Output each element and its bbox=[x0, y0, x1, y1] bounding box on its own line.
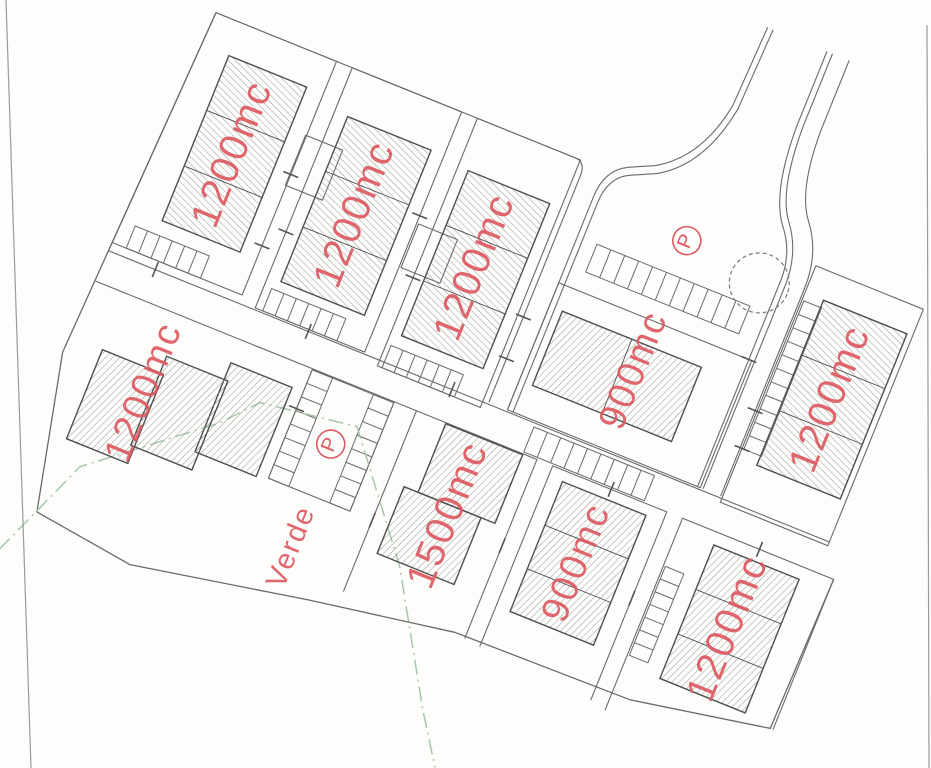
boundary-tick bbox=[608, 482, 614, 497]
stall-divider bbox=[312, 309, 321, 331]
stall-divider bbox=[655, 272, 666, 300]
building: 1500mc bbox=[371, 418, 522, 604]
boundary-tick bbox=[152, 262, 158, 277]
stall-divider bbox=[274, 465, 294, 473]
stall-divider bbox=[604, 459, 614, 484]
stall-divider bbox=[711, 295, 722, 323]
rotated-plan-group: 1200mc1200mc1200mc1200mc900mc1200mc1500m… bbox=[0, 0, 931, 768]
stall-divider bbox=[655, 592, 674, 599]
stall-divider bbox=[725, 300, 736, 328]
stall-divider bbox=[188, 251, 197, 273]
parking-symbol: P bbox=[312, 426, 348, 462]
stall-divider bbox=[771, 382, 789, 389]
boundary-tick bbox=[406, 275, 421, 281]
stall-divider bbox=[634, 643, 653, 650]
building: 1200mc bbox=[658, 540, 801, 718]
boundary-tick bbox=[735, 445, 750, 451]
stall-divider bbox=[301, 397, 321, 405]
building: 900mc bbox=[510, 482, 646, 646]
building: 1200mc bbox=[66, 304, 297, 512]
stall-divider bbox=[139, 231, 148, 253]
stall-divider bbox=[368, 408, 388, 416]
boundary-tick bbox=[499, 356, 514, 362]
stall-divider bbox=[660, 579, 679, 586]
site-plan-svg: 1200mc1200mc1200mc1200mc900mc1200mc1500m… bbox=[0, 0, 931, 768]
green-area-label: Verde bbox=[260, 501, 322, 593]
stall-divider bbox=[787, 341, 805, 348]
stall-divider bbox=[577, 449, 587, 474]
boundary-tick bbox=[255, 243, 270, 249]
stall-divider bbox=[341, 476, 361, 484]
parking-symbol-letter: P bbox=[673, 231, 698, 252]
building: 1200mc bbox=[281, 117, 431, 316]
building: 1200mc bbox=[401, 171, 549, 369]
scan-page-edge-left bbox=[6, 0, 31, 768]
boundary-tick bbox=[741, 357, 756, 363]
stall-divider bbox=[591, 454, 601, 479]
stall-divider bbox=[300, 304, 309, 326]
scanned-site-plan-document: 1200mc1200mc1200mc1200mc900mc1200mc1500m… bbox=[0, 0, 931, 768]
stall-divider bbox=[798, 314, 816, 321]
stall-divider bbox=[290, 424, 310, 432]
stall-divider bbox=[564, 443, 574, 468]
stall-divider bbox=[279, 451, 299, 459]
stall-divider bbox=[777, 368, 795, 375]
stall-divider bbox=[335, 489, 355, 497]
boundary-tick bbox=[629, 591, 635, 606]
stall-divider bbox=[683, 284, 694, 312]
stall-divider bbox=[362, 422, 382, 430]
parking-stalls bbox=[330, 394, 394, 511]
stall-divider bbox=[755, 422, 773, 429]
parking-symbol-letter: P bbox=[317, 434, 342, 455]
boundary-tick bbox=[516, 314, 531, 320]
stall-divider bbox=[645, 617, 664, 624]
stall-divider bbox=[760, 409, 778, 416]
stall-divider bbox=[669, 278, 680, 306]
stall-divider bbox=[749, 436, 767, 443]
stall-divider bbox=[766, 395, 784, 402]
boundary-tick bbox=[279, 229, 294, 235]
scan-page-edge-right bbox=[927, 25, 929, 768]
stall-divider bbox=[537, 432, 547, 457]
stall-divider bbox=[640, 630, 659, 637]
stall-divider bbox=[793, 328, 811, 335]
stall-divider bbox=[176, 246, 185, 268]
parking-symbol: P bbox=[669, 222, 705, 258]
stall-divider bbox=[346, 462, 366, 470]
stall-divider bbox=[650, 604, 669, 611]
stall-divider bbox=[697, 289, 708, 317]
stall-divider bbox=[163, 241, 172, 263]
boundary-tick bbox=[449, 382, 455, 397]
stall-divider bbox=[287, 299, 296, 321]
boundary-tick bbox=[757, 542, 763, 557]
boundary-tick bbox=[369, 513, 375, 528]
stall-divider bbox=[275, 294, 284, 316]
stall-divider bbox=[324, 314, 333, 336]
boundary-tick bbox=[305, 324, 311, 339]
stall-divider bbox=[307, 383, 327, 391]
boundary-tick bbox=[412, 213, 427, 219]
stall-divider bbox=[352, 449, 372, 457]
stall-divider bbox=[641, 267, 652, 295]
boundary-tick bbox=[499, 538, 505, 553]
stall-divider bbox=[614, 255, 625, 283]
building: 1200mc bbox=[757, 300, 907, 499]
stall-divider bbox=[631, 470, 641, 495]
stall-divider bbox=[551, 438, 561, 463]
stall-divider bbox=[627, 261, 638, 289]
stall-divider bbox=[600, 250, 611, 278]
stall-divider bbox=[618, 465, 628, 490]
stall-divider bbox=[285, 438, 305, 446]
stall-divider bbox=[782, 355, 800, 362]
stall-divider bbox=[151, 236, 160, 258]
